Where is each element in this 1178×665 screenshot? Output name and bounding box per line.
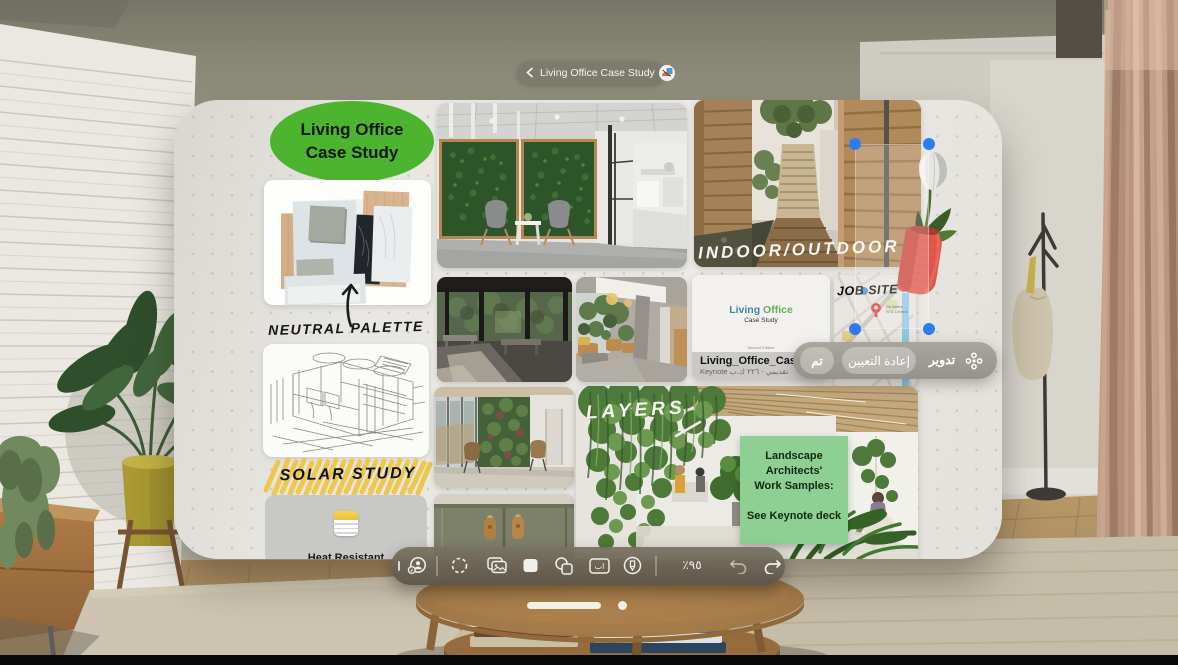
- svg-text:اب: اب: [595, 562, 605, 571]
